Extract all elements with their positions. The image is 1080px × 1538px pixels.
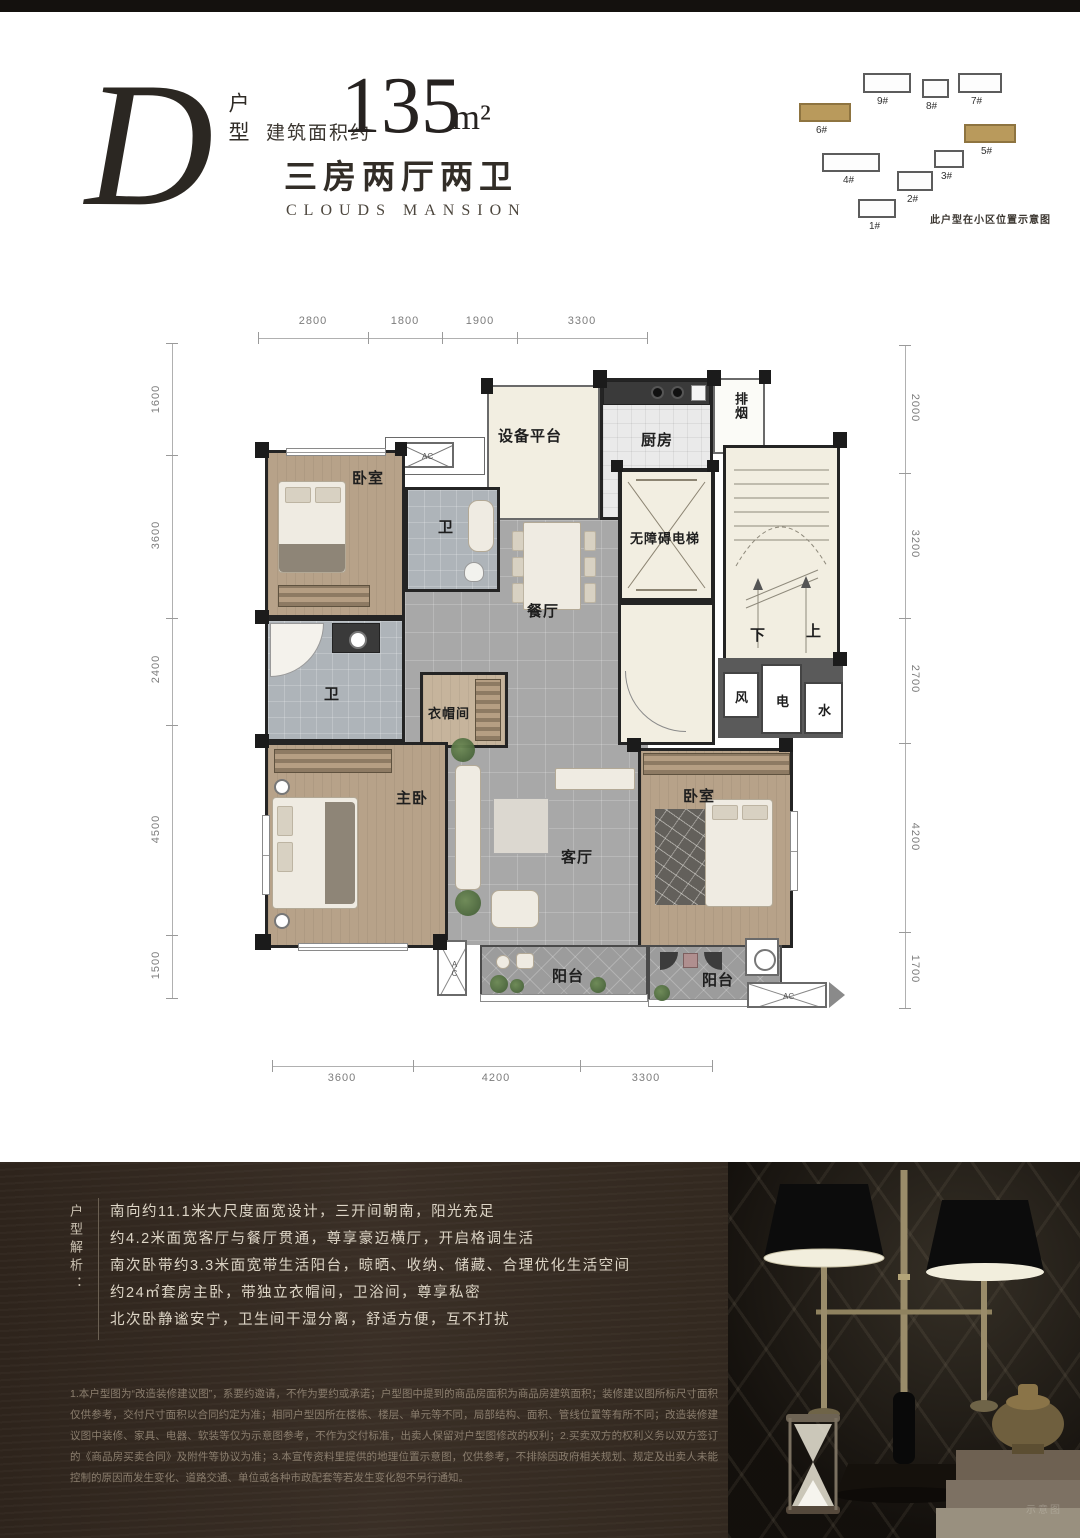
- stair-up-label: 上: [806, 620, 822, 641]
- building-4-label: 4#: [843, 175, 854, 186]
- building-9: [863, 73, 911, 93]
- dim-right-5: 1700: [909, 941, 921, 997]
- shaft-wind: 风: [723, 672, 759, 718]
- washing-machine: [745, 938, 779, 976]
- dim-left-2: 3600: [150, 507, 162, 563]
- building-1-label: 1#: [869, 221, 880, 232]
- bathtub-north: [468, 500, 494, 552]
- building-8: [922, 79, 949, 98]
- balcony-south-label: 阳台: [552, 965, 584, 986]
- balcony-south: 阳台: [480, 945, 648, 1002]
- room-bedroom-south: 卧室: [638, 748, 793, 948]
- analysis-line: 南向约11.1米大尺度面宽设计，三开间朝南，阳光充足: [110, 1200, 495, 1221]
- dim-right-1: 2000: [909, 380, 921, 436]
- stair-down-label: 下: [750, 624, 766, 645]
- dim-bottom-1: 3600: [317, 1072, 367, 1084]
- top-border-bar: [0, 0, 1080, 12]
- dim-left-4: 4500: [150, 801, 162, 857]
- ac-unit-label: AC: [783, 992, 794, 1001]
- bed-south: [705, 799, 773, 907]
- unit-type-label: 户型: [222, 92, 252, 150]
- ac-unit-label: AC: [450, 960, 459, 978]
- corner-tub: [270, 623, 324, 677]
- building-6-highlighted: [799, 103, 851, 122]
- disclaimer-text: 1.本户型图为“改造装修建议图”，系要约邀请，不作为要约或承诺；户型图中提到的商…: [70, 1384, 718, 1489]
- dim-right-2: 3200: [909, 516, 921, 572]
- poster-page: D 户型 建筑面积约 135 m² 三房两厅两卫 CLOUDS MANSION …: [0, 0, 1080, 1538]
- building-1: [858, 199, 896, 218]
- shaft-water-label: 水: [818, 700, 832, 719]
- vanity-master: [332, 623, 380, 653]
- double-lamp-illustration: [728, 1162, 1080, 1538]
- room-bath-north: 卫: [405, 487, 500, 592]
- project-name: CLOUDS MANSION: [286, 202, 527, 220]
- bed-north: [278, 481, 346, 573]
- bedroom-south-label: 卧室: [683, 785, 715, 806]
- ac-unit-label: AC: [422, 452, 433, 461]
- shaft-water: 水: [804, 682, 843, 734]
- building-3-label: 3#: [941, 171, 952, 182]
- room-cloakroom: 衣帽间: [420, 672, 508, 748]
- living-label: 客厅: [561, 846, 593, 867]
- dim-bottom-3: 3300: [621, 1072, 671, 1084]
- analysis-line: 约24㎡套房主卧，带独立衣帽间，卫浴间，尊享私密: [110, 1281, 481, 1302]
- building-7-label: 7#: [971, 96, 982, 107]
- area-unit: m²: [452, 96, 491, 138]
- room-elevator: 无障碍电梯: [618, 468, 715, 602]
- tv-bench: [555, 768, 635, 790]
- building-9-label: 9#: [877, 96, 888, 107]
- room-bedroom-north: 卧室: [265, 450, 405, 618]
- dim-right-3: 2700: [909, 651, 921, 707]
- master-bedroom-label: 主卧: [396, 787, 428, 808]
- entry-hall: [618, 602, 715, 745]
- building-2: [897, 171, 933, 191]
- decor-photo: 示意图: [728, 1162, 1080, 1538]
- dim-left-3: 2400: [150, 641, 162, 697]
- analysis-line: 约4.2米面宽客厅与餐厅贯通，尊享豪迈横厅，开启格调生活: [110, 1227, 535, 1248]
- bath-master-label: 卫: [324, 683, 340, 704]
- shaft-wind-label: 风: [735, 687, 749, 706]
- building-6-label: 6#: [816, 125, 827, 136]
- bath-north-label: 卫: [438, 516, 454, 537]
- photo-watermark: 示意图: [1026, 1501, 1062, 1516]
- toilet-north: [464, 562, 484, 582]
- floor-plan: 设备平台 厨房 排烟 AC: [255, 370, 855, 1020]
- entry-door-arc: [625, 671, 686, 732]
- armchair: [491, 890, 539, 928]
- building-5-highlighted: [964, 124, 1016, 143]
- analysis-line: 北次卧静谧安宁，卫生间干湿分离，舒适方便，互不打扰: [110, 1308, 510, 1329]
- building-3: [934, 150, 964, 168]
- dim-bottom-2: 4200: [471, 1072, 521, 1084]
- shaft-electric-label: 电: [776, 691, 790, 710]
- sofa-main: [455, 765, 481, 890]
- building-5-label: 5#: [981, 146, 992, 157]
- bedroom-north-label: 卧室: [352, 467, 384, 488]
- building-8-label: 8#: [926, 101, 937, 112]
- dining-label: 餐厅: [527, 600, 559, 621]
- dim-left-5: 1500: [150, 937, 162, 993]
- unit-letter: D: [85, 55, 214, 233]
- room-exhaust: 排烟: [713, 378, 765, 454]
- dining-table: [523, 522, 581, 610]
- ac-unit-southeast: AC: [747, 982, 827, 1008]
- building-2-label: 2#: [907, 194, 918, 205]
- kitchen-label: 厨房: [641, 429, 673, 450]
- layout-description: 三房两厅两卫: [284, 150, 518, 198]
- site-map-caption: 此户型在小区位置示意图: [930, 211, 1051, 226]
- coffee-table: [493, 798, 549, 854]
- balcony-southeast-label: 阳台: [702, 969, 734, 990]
- dim-top-1: 2800: [288, 315, 338, 327]
- analysis-line: 南次卧带约3.3米面宽带生活阳台，晾晒、收纳、储藏、合理优化生活空间: [110, 1254, 631, 1275]
- flow-arrow-icon: [829, 982, 845, 1008]
- dim-top-4: 3300: [557, 315, 607, 327]
- building-4: [822, 153, 880, 172]
- equipment-platform-label: 设备平台: [498, 425, 562, 446]
- dim-right-4: 4200: [909, 809, 921, 865]
- room-equipment-platform: 设备平台: [487, 385, 600, 520]
- room-master-bedroom: 主卧: [265, 742, 448, 948]
- dim-left-1: 1600: [150, 371, 162, 427]
- room-bath-master: 卫: [265, 618, 405, 742]
- analysis-block: 南向约11.1米大尺度面宽设计，三开间朝南，阳光充足 约4.2米面宽客厅与餐厅贯…: [110, 1200, 730, 1350]
- exhaust-label: 排烟: [731, 392, 750, 420]
- analysis-title: 户型解析：: [66, 1204, 85, 1294]
- building-7: [958, 73, 1002, 93]
- shaft-electric: 电: [761, 664, 802, 734]
- dim-top-3: 1900: [455, 315, 505, 327]
- cloakroom-label: 衣帽间: [428, 703, 470, 722]
- area-value: 135: [341, 66, 461, 146]
- elevator-label: 无障碍电梯: [630, 528, 700, 547]
- bed-master: [272, 797, 358, 909]
- analysis-divider: [98, 1198, 99, 1340]
- dim-top-2: 1800: [380, 315, 430, 327]
- bottom-section: 户型解析： 南向约11.1米大尺度面宽设计，三开间朝南，阳光充足 约4.2米面宽…: [0, 1162, 1080, 1538]
